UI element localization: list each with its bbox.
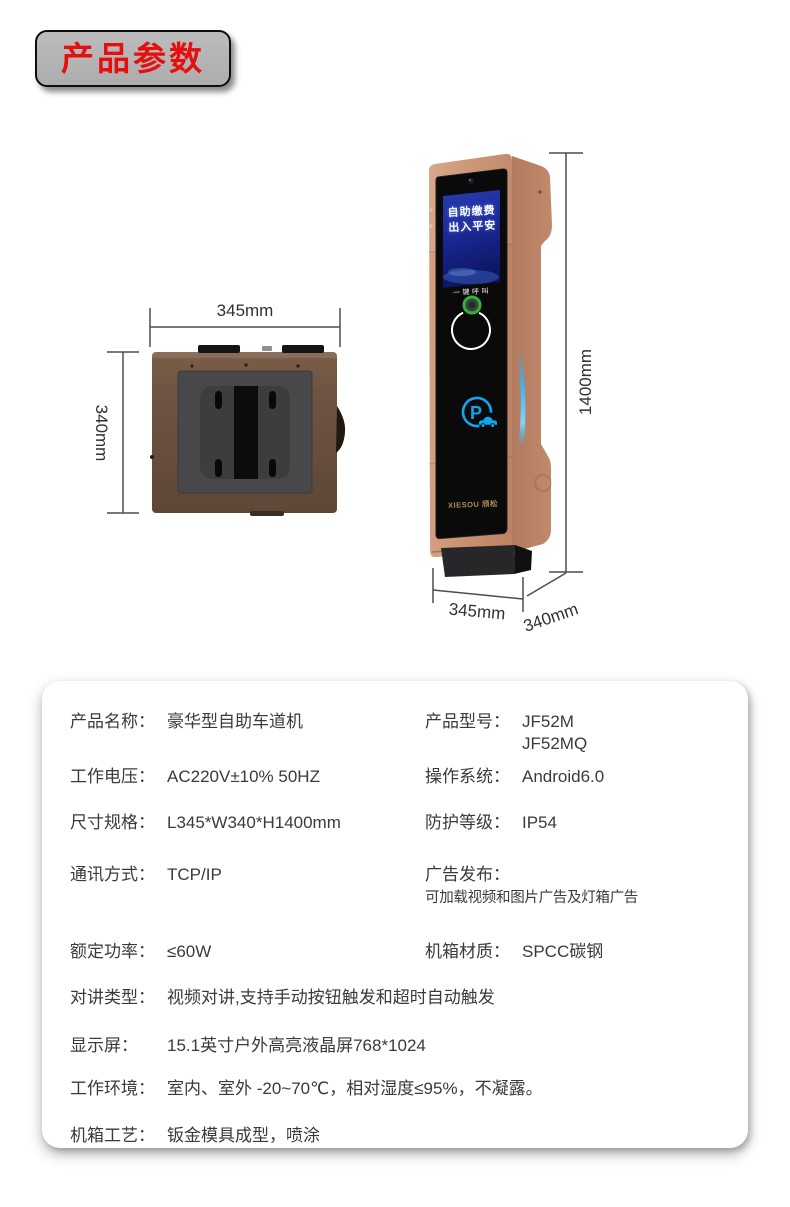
spec-label: 对讲类型： bbox=[70, 987, 167, 1009]
spec-value: 视频对讲,支持手动按钮触发和超时自动触发 bbox=[167, 988, 495, 1007]
spec-label: 产品名称： bbox=[70, 711, 167, 733]
top-view-body bbox=[150, 345, 345, 516]
spec-label: 操作系统： bbox=[425, 766, 522, 788]
spec-label: 额定功率： bbox=[70, 941, 167, 963]
spec-value: TCP/IP bbox=[167, 865, 222, 884]
spec-row-intercom: 对讲类型：视频对讲,支持手动按钮触发和超时自动触发 bbox=[70, 987, 724, 1009]
spec-label: 广告发布： bbox=[425, 864, 522, 886]
spec-value: IP54 bbox=[522, 813, 557, 832]
screen-slogan: 自助缴费 出入平安 bbox=[440, 203, 503, 236]
spec-label: 工作电压： bbox=[70, 766, 167, 788]
top-view-depth-label: 340mm bbox=[91, 393, 111, 473]
spec-card: 产品名称：豪华型自助车道机 产品型号：JF52MJF52MQ 工作电压：AC22… bbox=[42, 681, 748, 1148]
side-latch bbox=[336, 406, 345, 453]
spec-row-comm-ad: 通讯方式：TCP/IP 广告发布：可加载视频和图片广告及灯箱广告 bbox=[70, 864, 724, 909]
base-front bbox=[441, 545, 515, 577]
top-view-width-label: 345mm bbox=[195, 301, 295, 321]
spec-label: 机箱材质： bbox=[425, 941, 522, 963]
spec-row-voltage-os: 工作电压：AC220V±10% 50HZ 操作系统：Android6.0 bbox=[70, 766, 724, 788]
spec-label: 尺寸规格： bbox=[70, 812, 167, 834]
spec-row-display: 显示屏：15.1英寸户外高亮液晶屏768*1024 bbox=[70, 1035, 724, 1057]
front-height-label: 1400mm bbox=[576, 342, 596, 422]
spec-label: 产品型号： bbox=[425, 711, 522, 733]
spec-value: SPCC碳钢 bbox=[522, 942, 603, 961]
spec-row-craft: 机箱工艺：钣金模具成型，喷涂 bbox=[70, 1125, 724, 1147]
spec-label: 工作环境： bbox=[70, 1078, 167, 1100]
spec-value: Android6.0 bbox=[522, 767, 604, 786]
spec-value: ≤60W bbox=[167, 942, 211, 961]
product-drawing: P bbox=[0, 0, 790, 660]
product-parameter-page: 产品参数 bbox=[0, 0, 790, 1207]
camera-icon bbox=[468, 178, 474, 184]
spec-value: 可加载视频和图片广告及灯箱广告 bbox=[425, 890, 638, 906]
spec-value: 15.1英寸户外高亮液晶屏768*1024 bbox=[167, 1036, 426, 1055]
svg-text:P: P bbox=[470, 403, 482, 423]
brand-logo: XIESOU 颀松 bbox=[440, 498, 506, 511]
product-figure: P bbox=[0, 0, 790, 660]
spec-row-environment: 工作环境：室内、室外 -20~70℃，相对湿度≤95%，不凝露。 bbox=[70, 1078, 724, 1100]
spec-value: 钣金模具成型，喷涂 bbox=[167, 1126, 320, 1145]
spec-row-size-ip: 尺寸规格：L345*W340*H1400mm 防护等级：IP54 bbox=[70, 812, 724, 834]
base-side bbox=[514, 545, 532, 574]
spec-value: AC220V±10% 50HZ bbox=[167, 767, 320, 786]
spec-label: 机箱工艺： bbox=[70, 1125, 167, 1147]
spec-value: JF52M bbox=[522, 711, 587, 733]
kiosk-side-face bbox=[512, 156, 552, 552]
spec-value: JF52MQ bbox=[522, 733, 587, 755]
spec-label: 显示屏： bbox=[70, 1035, 167, 1057]
spec-row-power-material: 额定功率：≤60W 机箱材质：SPCC碳钢 bbox=[70, 941, 724, 963]
spec-value: 室内、室外 -20~70℃，相对湿度≤95%，不凝露。 bbox=[167, 1079, 543, 1098]
spec-row-name-model: 产品名称：豪华型自助车道机 产品型号：JF52MJF52MQ bbox=[70, 711, 724, 755]
spec-label: 防护等级： bbox=[425, 812, 522, 834]
spec-value: L345*W340*H1400mm bbox=[167, 813, 341, 832]
spec-label: 通讯方式： bbox=[70, 864, 167, 886]
spec-value: 豪华型自助车道机 bbox=[167, 712, 303, 731]
